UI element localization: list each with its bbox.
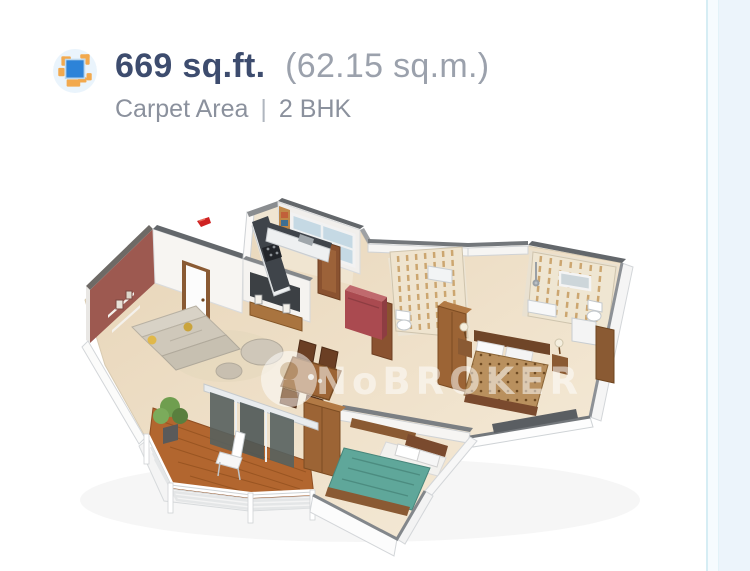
carpet-area-label: Carpet Area	[115, 95, 248, 124]
card-right-divider	[706, 0, 719, 571]
area-subtitle: Carpet Area | 2 BHK	[115, 95, 489, 124]
subtitle-separator: |	[248, 95, 279, 124]
dresser-white	[572, 318, 596, 345]
bhk-label: 2 BHK	[279, 95, 351, 124]
area-sqft-value: 669 sq.ft.	[115, 47, 265, 85]
property-detail-page: { "page": { "background": "#ecf4fb", "ca…	[0, 0, 750, 571]
carpet-area-header: 669 sq.ft. (62.15 sq.m.) Carpet Area | 2…	[52, 46, 489, 124]
cabinet-tall	[596, 326, 614, 383]
red-direction-marker	[197, 217, 211, 227]
floorplan-image[interactable]: NoBROKER	[0, 150, 706, 571]
pouf-small	[216, 363, 242, 379]
area-title: 669 sq.ft. (62.15 sq.m.)	[115, 46, 489, 86]
area-sqm-value: (62.15 sq.m.)	[285, 47, 489, 85]
nobroker-logo	[280, 362, 298, 380]
watermark-text: NoBROKER	[316, 360, 583, 403]
area-dimension-icon	[52, 48, 98, 94]
